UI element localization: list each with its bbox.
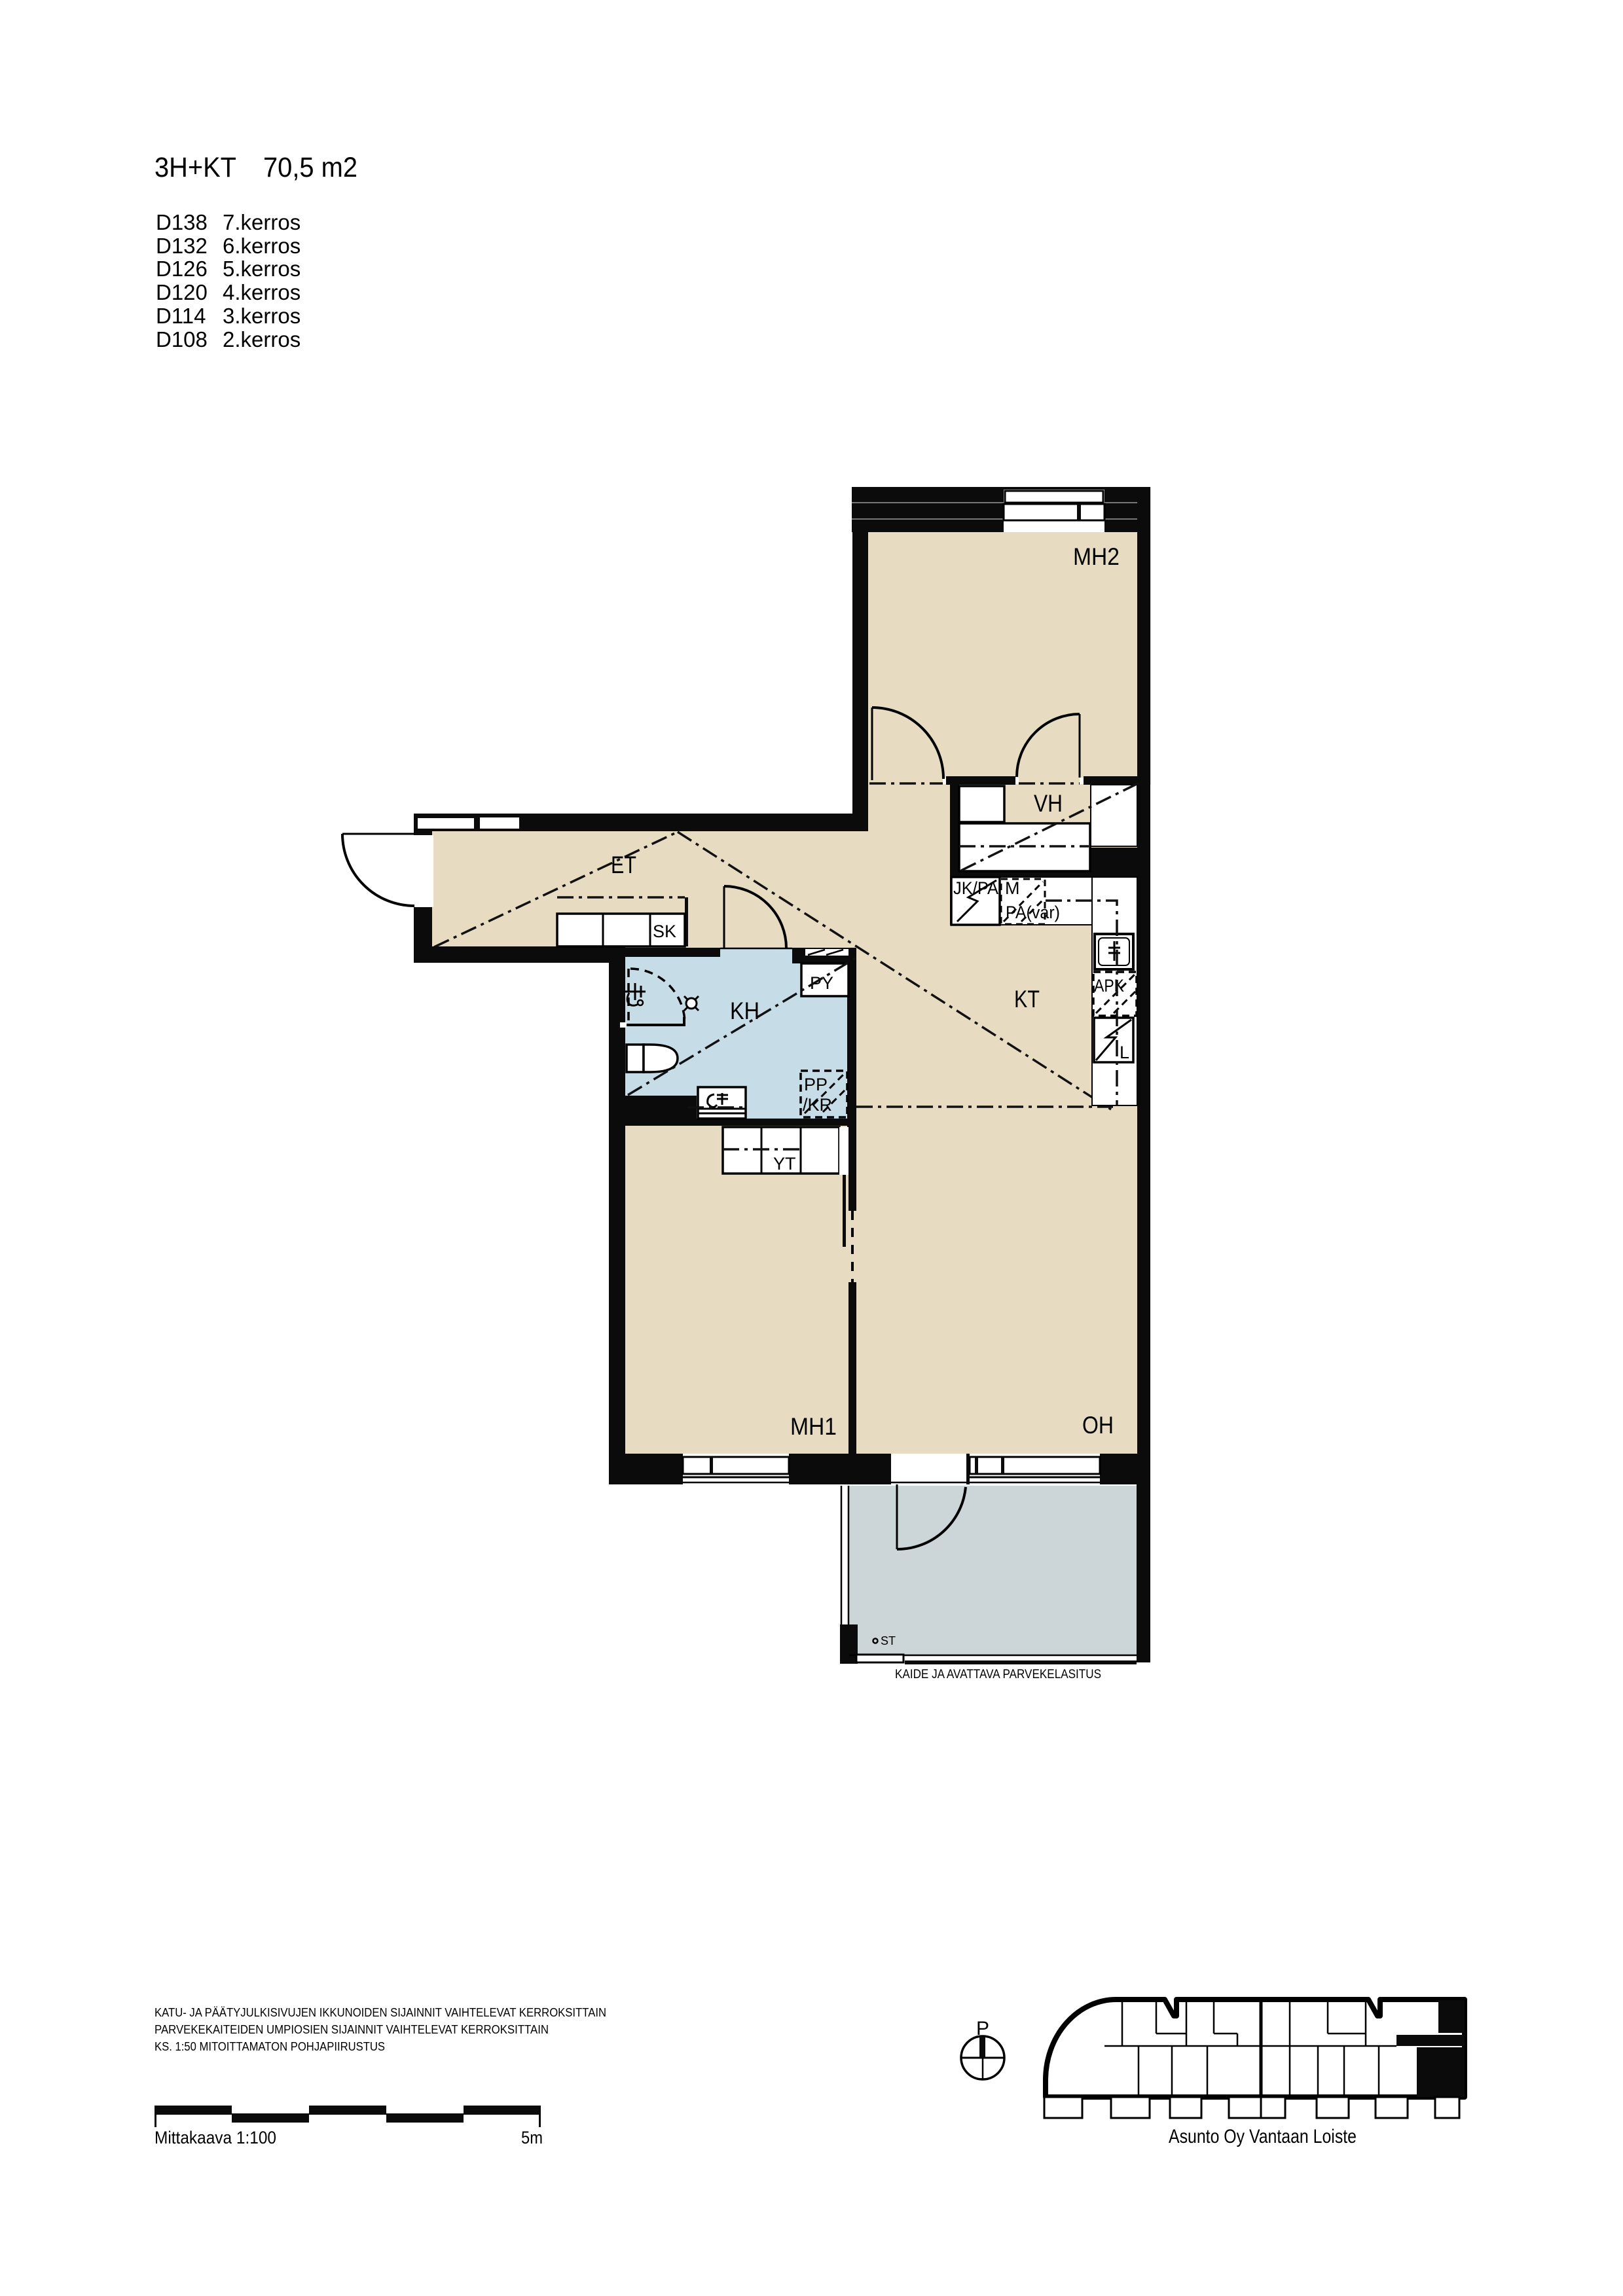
svg-text:D126: D126: [156, 257, 208, 281]
svg-text:PA(var): PA(var): [1006, 903, 1060, 922]
svg-text:5.kerros: 5.kerros: [223, 257, 301, 281]
svg-text:3.kerros: 3.kerros: [223, 304, 301, 328]
svg-text:KATU- JA PÄÄTYJULKISIVUJEN IKK: KATU- JA PÄÄTYJULKISIVUJEN IKKUNOIDEN SI…: [155, 2006, 606, 2019]
svg-text:OH: OH: [1082, 1412, 1114, 1439]
svg-text:ST: ST: [881, 1634, 896, 1647]
svg-text:/KR: /KR: [803, 1095, 832, 1115]
svg-text:MH2: MH2: [1073, 543, 1120, 570]
svg-text:5m: 5m: [521, 2128, 543, 2147]
svg-text:JK/PA: JK/PA: [953, 878, 998, 898]
svg-text:L: L: [1120, 1043, 1129, 1062]
svg-text:MH1: MH1: [790, 1413, 837, 1440]
svg-text:6.kerros: 6.kerros: [223, 234, 301, 258]
svg-text:D132: D132: [156, 234, 208, 258]
svg-text:KS. 1:50 MITOITTAMATON POHJAPI: KS. 1:50 MITOITTAMATON POHJAPIIRUSTUS: [155, 2040, 385, 2053]
svg-text:4.kerros: 4.kerros: [223, 280, 301, 304]
svg-text:M: M: [1005, 878, 1020, 898]
svg-text:ET: ET: [611, 852, 636, 878]
svg-text:VH: VH: [1034, 790, 1063, 817]
svg-text:KAIDE JA AVATTAVA PARVEKELASIT: KAIDE JA AVATTAVA PARVEKELASITUS: [895, 1668, 1101, 1681]
svg-text:PP: PP: [804, 1075, 828, 1094]
svg-text:KT: KT: [1014, 986, 1040, 1013]
svg-text:YT: YT: [773, 1154, 796, 1174]
svg-text:PARVEKEKAITEIDEN UMPIOSIEN SIJ: PARVEKEKAITEIDEN UMPIOSIEN SIJAINNIT VAI…: [155, 2023, 549, 2036]
svg-text:KH: KH: [730, 997, 759, 1024]
svg-text:D138: D138: [156, 210, 208, 234]
svg-text:D120: D120: [156, 280, 208, 304]
svg-text:D108: D108: [156, 327, 208, 351]
svg-text:3H+KT: 3H+KT: [155, 152, 236, 183]
svg-text:SK: SK: [653, 922, 676, 941]
svg-text:7.kerros: 7.kerros: [223, 210, 301, 234]
svg-text:Asunto Oy Vantaan Loiste: Asunto Oy Vantaan Loiste: [1169, 2126, 1357, 2147]
svg-text:D114: D114: [156, 304, 206, 328]
svg-text:70,5 m2: 70,5 m2: [263, 152, 357, 183]
svg-text:2.kerros: 2.kerros: [223, 327, 301, 351]
svg-text:APK: APK: [1094, 976, 1124, 996]
svg-text:Mittakaava 1:100: Mittakaava 1:100: [155, 2128, 276, 2147]
